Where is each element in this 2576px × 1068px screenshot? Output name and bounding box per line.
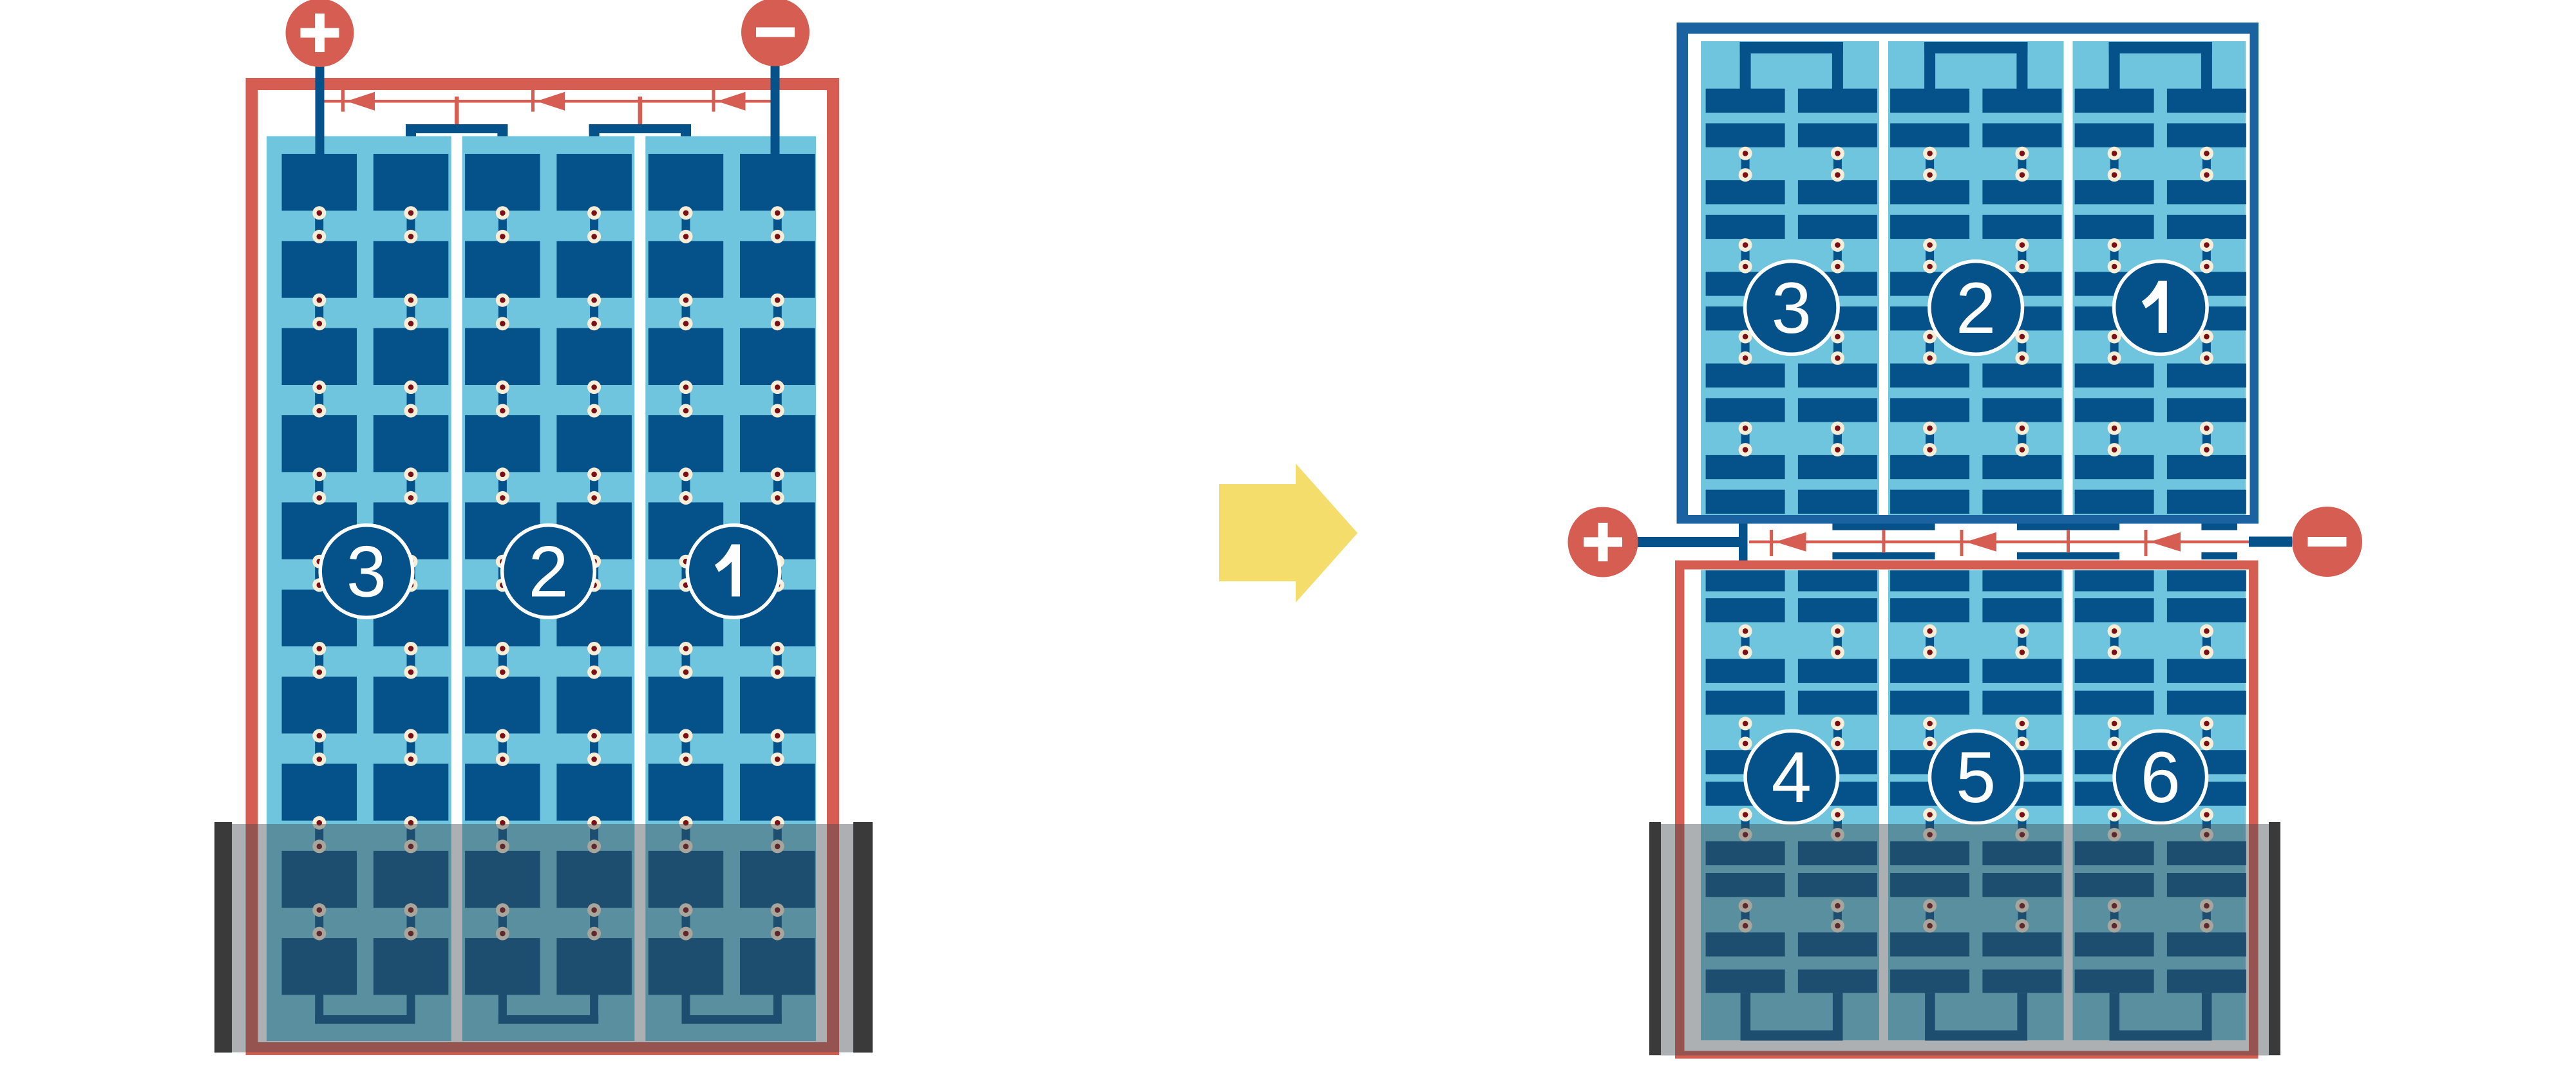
svg-text:2: 2: [528, 532, 568, 612]
svg-text:4: 4: [1772, 737, 1812, 818]
svg-text:3: 3: [346, 532, 386, 612]
svg-text:6: 6: [2141, 737, 2181, 818]
svg-text:5: 5: [1956, 737, 1996, 818]
svg-text:2: 2: [1956, 268, 1996, 348]
svg-text:3: 3: [1772, 268, 1812, 348]
